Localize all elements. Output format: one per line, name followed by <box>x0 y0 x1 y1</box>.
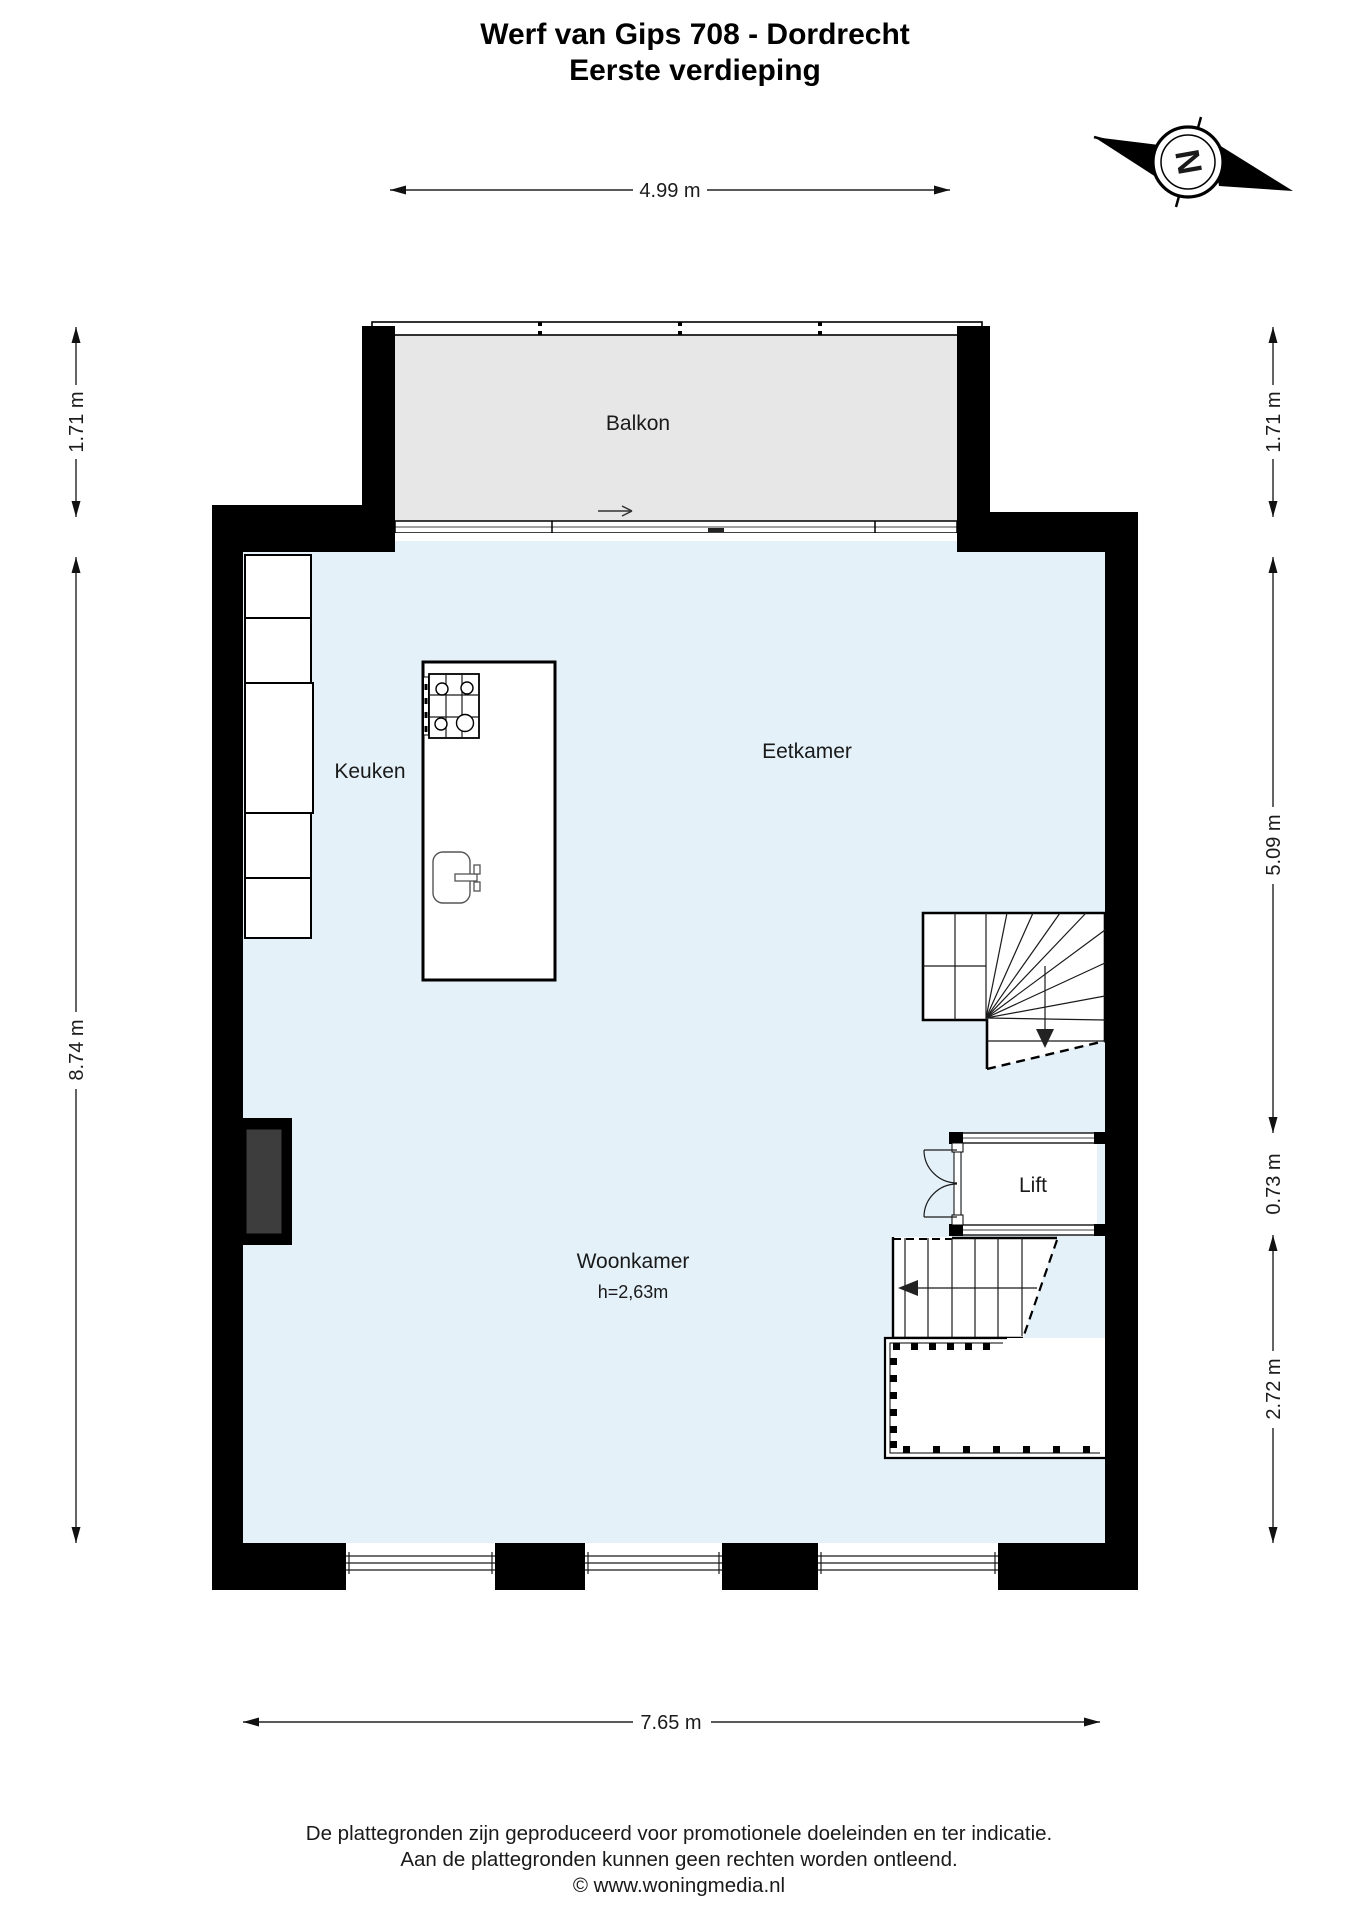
page-subtitle: Eerste verdieping <box>569 54 821 87</box>
stair-void-balustrade <box>885 1338 1105 1458</box>
lift-room: Lift <box>924 1132 1108 1236</box>
dimension-right-lower: 2.72 m <box>1263 1235 1285 1543</box>
balcony-area: Balkon <box>372 322 982 525</box>
balcony-railing <box>372 322 982 335</box>
dimension-left-main: 8.74 m <box>66 557 88 1543</box>
dimension-left-balcony: 1.71 m <box>66 327 88 517</box>
dimension-label: 1.71 m <box>66 391 88 452</box>
room-label-woonkamer-height: h=2,63m <box>598 1282 669 1302</box>
wall-niche-block <box>243 1118 292 1245</box>
wall-right <box>1105 512 1138 1590</box>
room-label-woonkamer: Woonkamer <box>577 1250 690 1273</box>
wall-top-left <box>212 505 395 552</box>
window <box>346 1543 495 1590</box>
dimension-label: 2.72 m <box>1263 1358 1285 1419</box>
floorplan-page: Werf van Gips 708 - Dordrecht Eerste ver… <box>0 0 1358 1920</box>
window <box>585 1543 722 1590</box>
room-label-lift: Lift <box>1019 1174 1047 1197</box>
kitchen-island <box>423 662 555 980</box>
floorplan-canvas: Werf van Gips 708 - Dordrecht Eerste ver… <box>0 0 1358 1920</box>
dimension-label: 5.09 m <box>1263 814 1285 875</box>
dimension-right-lift: 0.73 m <box>1263 1153 1285 1214</box>
dimension-bottom: 7.65 m <box>243 1712 1100 1734</box>
room-label-eetkamer: Eetkamer <box>762 740 852 763</box>
bottom-windows <box>346 1543 998 1590</box>
footer-copyright: © www.woningmedia.nl <box>573 1874 785 1897</box>
dimension-label: 8.74 m <box>66 1019 88 1080</box>
dimension-label: 1.71 m <box>1263 391 1285 452</box>
dimension-label: 7.65 m <box>640 1712 701 1734</box>
dimension-right-upper: 5.09 m <box>1263 557 1285 1133</box>
dimension-top: 4.99 m <box>390 180 950 202</box>
footer-disclaimer-line2: Aan de plattegronden kunnen geen rechten… <box>400 1848 957 1871</box>
wall-left <box>212 505 243 1590</box>
room-label-keuken: Keuken <box>334 760 405 783</box>
dimension-label: 4.99 m <box>639 180 700 202</box>
room-label-balkon: Balkon <box>606 412 670 435</box>
dimension-right-balcony: 1.71 m <box>1263 327 1285 517</box>
window <box>818 1543 998 1590</box>
dimension-label: 0.73 m <box>1263 1153 1285 1214</box>
footer-disclaimer-line1: De plattegronden zijn geproduceerd voor … <box>306 1822 1052 1845</box>
compass-north-icon: N <box>1094 117 1293 207</box>
page-title: Werf van Gips 708 - Dordrecht <box>480 18 910 51</box>
stove-icon <box>424 674 480 738</box>
kitchen-cabinets <box>245 555 313 938</box>
